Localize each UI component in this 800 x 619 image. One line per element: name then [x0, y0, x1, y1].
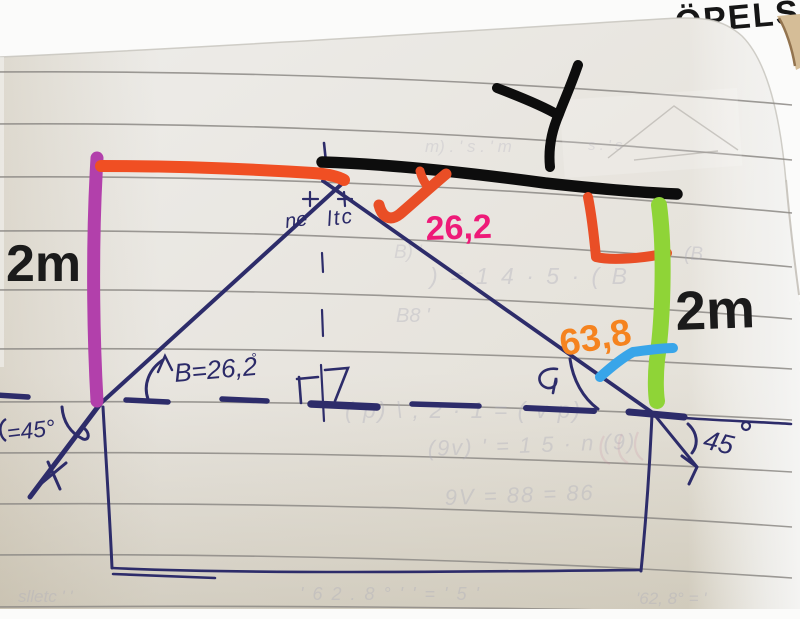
- svg-text:ltc: ltc: [325, 204, 355, 231]
- svg-text:m) . ' s . ' m: m) . ' s . ' m: [425, 137, 512, 156]
- svg-text:2m: 2m: [6, 235, 81, 293]
- svg-text:B8 ': B8 ': [396, 305, 431, 327]
- svg-text:' 6 2 . 8 ° ' ' = ' 5 ': ' 6 2 . 8 ° ' ' = ' 5 ': [300, 584, 481, 604]
- svg-text:'62, 8° = ': '62, 8° = ': [636, 589, 707, 608]
- svg-text:s . ' s: s . ' s: [588, 137, 623, 154]
- svg-text:26,2: 26,2: [425, 208, 492, 248]
- svg-text:°: °: [251, 350, 256, 365]
- svg-text:B) ': B) ': [394, 242, 423, 263]
- svg-text:9V = 88 = 86: 9V = 88 = 86: [444, 480, 595, 510]
- svg-text:ne: ne: [284, 208, 309, 233]
- svg-text:(B: (B: [684, 244, 703, 265]
- svg-text:2m: 2m: [674, 277, 756, 342]
- svg-text:slletc ' ': slletc ' ': [18, 587, 73, 606]
